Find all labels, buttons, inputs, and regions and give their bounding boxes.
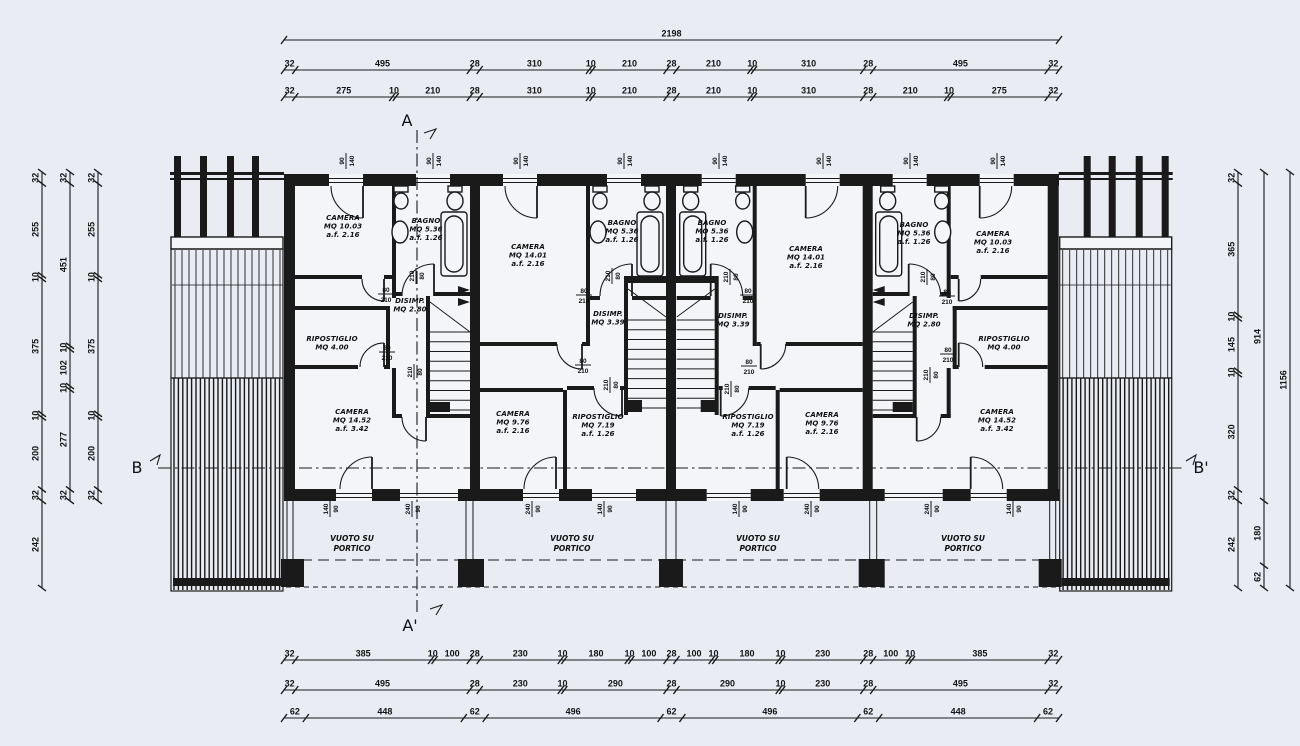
porch-label: VUOTO SU bbox=[330, 534, 374, 543]
porch-door-opening bbox=[523, 489, 559, 501]
porch-label: PORTICO bbox=[739, 544, 777, 553]
room-label: CAMERA bbox=[511, 243, 545, 251]
porch-label: PORTICO bbox=[944, 544, 982, 553]
dim-label: 28 bbox=[470, 679, 480, 689]
dim-label: 310 bbox=[801, 59, 816, 69]
size-label-num: 210 bbox=[409, 270, 416, 281]
deck-boards bbox=[172, 250, 283, 590]
size-label-den: 80 bbox=[930, 273, 937, 281]
room-label: MQ 14.52 bbox=[333, 417, 371, 425]
room-label: MQ 14.52 bbox=[978, 417, 1016, 425]
dim-label: 28 bbox=[666, 649, 676, 659]
dim-label: 180 bbox=[589, 649, 604, 659]
size-label-den: 90 bbox=[415, 505, 422, 513]
size-label-num: 210 bbox=[724, 383, 731, 394]
dim-label: 230 bbox=[513, 679, 528, 689]
room-label: a.f. 2.16 bbox=[805, 428, 838, 436]
toilet-icon bbox=[448, 186, 462, 192]
partition bbox=[392, 368, 396, 417]
size-label-den: 210 bbox=[744, 369, 755, 376]
dim-label: 210 bbox=[425, 86, 440, 96]
room-label: MQ 3.39 bbox=[716, 321, 749, 329]
dim-label: 365 bbox=[1227, 242, 1237, 257]
partition bbox=[480, 342, 557, 346]
size-label-num: 140 bbox=[732, 503, 739, 514]
size-label: 14090 bbox=[732, 501, 749, 517]
porch-pier-lines bbox=[666, 501, 676, 559]
dim-label: 32 bbox=[285, 679, 295, 689]
dim-label: 277 bbox=[59, 432, 69, 447]
dim-label: 2198 bbox=[661, 29, 681, 39]
partition bbox=[295, 306, 390, 310]
partition bbox=[567, 386, 594, 390]
room-label: a.f. 1.26 bbox=[731, 430, 764, 438]
room-label: MQ 4.00 bbox=[987, 344, 1020, 352]
dim-label: 62 bbox=[290, 707, 300, 717]
size-label-num: 80 bbox=[745, 359, 753, 366]
dim-label: 275 bbox=[992, 86, 1007, 96]
section-label-a: A bbox=[402, 111, 413, 130]
room-label: a.f. 1.26 bbox=[409, 234, 442, 242]
size-label-den: 140 bbox=[349, 155, 356, 166]
room-label: MQ 7.19 bbox=[731, 422, 764, 430]
size-label-den: 90 bbox=[814, 505, 821, 513]
size-label-den: 80 bbox=[417, 368, 424, 376]
dim-label: 310 bbox=[527, 59, 542, 69]
porch-label: VUOTO SU bbox=[736, 534, 780, 543]
size-label: 90140 bbox=[617, 153, 634, 169]
room-label: CAMERA bbox=[326, 214, 360, 222]
size-label-den: 80 bbox=[615, 272, 622, 280]
pergola-rail bbox=[170, 178, 284, 180]
floorplan-drawing: A A' B B' 219832495283101021028210103102… bbox=[0, 0, 1300, 746]
room-label: CAMERA bbox=[805, 411, 839, 419]
partition bbox=[480, 388, 563, 392]
central-party-wall bbox=[666, 174, 676, 501]
size-label-den: 210 bbox=[578, 368, 589, 375]
size-label-num: 240 bbox=[924, 503, 931, 514]
room-label: RIPOSTIGLIO bbox=[978, 335, 1029, 343]
partition bbox=[392, 414, 402, 418]
dim-label: 210 bbox=[706, 86, 721, 96]
dim-label: 145 bbox=[1227, 337, 1237, 352]
size-label-num: 140 bbox=[1006, 503, 1013, 514]
size-label: 90140 bbox=[990, 153, 1007, 169]
size-label-den: 210 bbox=[381, 297, 392, 304]
size-label: 14090 bbox=[1006, 501, 1023, 517]
room-label: BAGNO bbox=[900, 221, 929, 229]
dim-label: 32 bbox=[285, 649, 295, 659]
room-label: MQ 5.36 bbox=[897, 230, 930, 238]
section-flag bbox=[424, 129, 436, 139]
dim-label: 320 bbox=[1227, 424, 1237, 439]
size-label-den: 90 bbox=[607, 505, 614, 513]
partition bbox=[384, 275, 392, 279]
bidet-icon bbox=[394, 186, 408, 192]
room-label: a.f. 2.16 bbox=[511, 260, 544, 268]
size-label-den: 80 bbox=[419, 272, 426, 280]
porch-label: VUOTO SU bbox=[550, 534, 594, 543]
size-label-num: 90 bbox=[990, 157, 997, 165]
sink-icon bbox=[590, 221, 606, 243]
dim-label: 242 bbox=[1227, 537, 1237, 552]
dim-label: 62 bbox=[666, 707, 676, 717]
section-label-b-prime: B' bbox=[1193, 458, 1208, 477]
size-label-den: 210 bbox=[382, 355, 393, 362]
size-label-den: 210 bbox=[743, 298, 754, 305]
dim-label: 28 bbox=[666, 86, 676, 96]
porch-door-opening bbox=[336, 489, 372, 501]
room-label: CAMERA bbox=[980, 408, 1014, 416]
pergola-beam bbox=[227, 156, 234, 246]
room-label: MQ 14.01 bbox=[787, 254, 825, 262]
dim-label: 200 bbox=[31, 446, 41, 461]
size-label-num: 80 bbox=[382, 287, 390, 294]
dim-label: 310 bbox=[527, 86, 542, 96]
size-label-den: 210 bbox=[579, 298, 590, 305]
porch-window-opening bbox=[400, 489, 458, 501]
dim-label: 62 bbox=[1253, 572, 1263, 582]
dim-label: 28 bbox=[470, 649, 480, 659]
porch-window-opening bbox=[592, 489, 636, 501]
size-label: 24090 bbox=[525, 501, 542, 517]
size-label-den: 210 bbox=[942, 299, 953, 306]
size-label-num: 140 bbox=[323, 503, 330, 514]
room-label: MQ 4.00 bbox=[315, 344, 348, 352]
dim-label: 210 bbox=[622, 86, 637, 96]
section-flag bbox=[150, 455, 160, 465]
dim-label: 28 bbox=[863, 679, 873, 689]
bathtub-icon bbox=[445, 216, 463, 272]
size-label-num: 210 bbox=[605, 270, 612, 281]
dim-label: 255 bbox=[87, 222, 97, 237]
dim-label: 290 bbox=[608, 679, 623, 689]
size-label-num: 80 bbox=[943, 289, 951, 296]
dim-label: 451 bbox=[59, 257, 69, 272]
bidet-icon bbox=[593, 186, 607, 192]
size-label-num: 90 bbox=[339, 157, 346, 165]
porch-pillar bbox=[281, 559, 304, 587]
dim-label: 210 bbox=[622, 59, 637, 69]
dim-label: 32 bbox=[285, 59, 295, 69]
room-label: a.f. 3.42 bbox=[335, 425, 368, 433]
room-label: BAGNO bbox=[698, 219, 727, 227]
room-label: MQ 10.03 bbox=[324, 223, 362, 231]
partition bbox=[295, 275, 362, 279]
dim-label: 230 bbox=[815, 649, 830, 659]
dim-label: 275 bbox=[336, 86, 351, 96]
room-label: a.f. 1.26 bbox=[695, 236, 728, 244]
dim-label: 180 bbox=[739, 649, 754, 659]
partition bbox=[434, 292, 470, 296]
toilet-icon bbox=[644, 192, 660, 210]
dim-label: 180 bbox=[1253, 526, 1263, 541]
dim-label: 290 bbox=[720, 679, 735, 689]
size-label-num: 90 bbox=[903, 157, 910, 165]
room-label: MQ 5.36 bbox=[409, 226, 442, 234]
dim-label: 32 bbox=[1048, 649, 1058, 659]
dim-label: 495 bbox=[375, 59, 390, 69]
room-label: MQ 5.36 bbox=[605, 228, 638, 236]
room-label: CAMERA bbox=[335, 408, 369, 416]
porch-label: PORTICO bbox=[553, 544, 591, 553]
room-label: MQ 7.19 bbox=[581, 422, 614, 430]
pergola-beam bbox=[174, 156, 181, 246]
size-label-num: 80 bbox=[383, 345, 391, 352]
window-opening bbox=[329, 174, 363, 186]
size-label: 90140 bbox=[816, 153, 833, 169]
dim-label: 62 bbox=[863, 707, 873, 717]
size-label-den: 80 bbox=[613, 381, 620, 389]
dim-label: 100 bbox=[445, 649, 460, 659]
room-label: MQ 2.80 bbox=[907, 321, 940, 329]
room-label: a.f. 2.16 bbox=[789, 262, 822, 270]
partition bbox=[632, 296, 666, 300]
dim-label: 28 bbox=[863, 59, 873, 69]
room-label: a.f. 3.42 bbox=[980, 425, 1013, 433]
room-label: a.f. 1.26 bbox=[581, 430, 614, 438]
dim-label: 100 bbox=[883, 649, 898, 659]
pergola-beam bbox=[252, 156, 259, 246]
room-label: RIPOSTIGLIO bbox=[572, 413, 623, 421]
size-label-num: 210 bbox=[603, 379, 610, 390]
dim-label: 496 bbox=[762, 707, 777, 717]
size-label: 90140 bbox=[903, 153, 920, 169]
size-label-num: 210 bbox=[407, 366, 414, 377]
size-label-den: 80 bbox=[933, 371, 940, 379]
dim-label: 28 bbox=[863, 649, 873, 659]
size-label-num: 140 bbox=[597, 503, 604, 514]
partition bbox=[624, 276, 668, 283]
size-label-num: 90 bbox=[712, 157, 719, 165]
room-label: DISIMP. bbox=[718, 312, 748, 320]
partition bbox=[295, 365, 358, 369]
dim-label: 255 bbox=[31, 222, 41, 237]
section-label-a-prime: A' bbox=[402, 616, 417, 635]
room-label: DISIMP. bbox=[909, 312, 939, 320]
size-label: 14090 bbox=[597, 501, 614, 517]
room-label: MQ 9.76 bbox=[805, 420, 838, 428]
toilet-icon bbox=[645, 186, 659, 192]
porch-pillar bbox=[458, 559, 484, 587]
room-label: a.f. 2.16 bbox=[976, 247, 1009, 255]
dim-label: 32 bbox=[1048, 59, 1058, 69]
porch-label: PORTICO bbox=[333, 544, 371, 553]
size-label: 90140 bbox=[426, 153, 443, 169]
size-label: 24090 bbox=[804, 501, 821, 517]
size-label-num: 210 bbox=[923, 369, 930, 380]
partition bbox=[590, 296, 600, 300]
room-label: CAMERA bbox=[976, 230, 1010, 238]
dim-label: 495 bbox=[953, 59, 968, 69]
room-label: a.f. 1.26 bbox=[897, 238, 930, 246]
room-label: DISIMP. bbox=[395, 297, 425, 305]
dim-label: 242 bbox=[31, 537, 41, 552]
room-label: a.f. 2.16 bbox=[496, 427, 529, 435]
room-label: MQ 3.39 bbox=[591, 319, 624, 327]
dim-label: 210 bbox=[706, 59, 721, 69]
room-label: CAMERA bbox=[789, 245, 823, 253]
sink-icon bbox=[392, 221, 408, 243]
room-label: a.f. 1.26 bbox=[605, 236, 638, 244]
size-label-den: 140 bbox=[826, 155, 833, 166]
room-label: MQ 2.80 bbox=[393, 306, 426, 314]
dim-label: 230 bbox=[815, 679, 830, 689]
room-label: MQ 14.01 bbox=[509, 252, 547, 260]
stair-landing-block bbox=[626, 400, 642, 412]
room-label: MQ 5.36 bbox=[695, 228, 728, 236]
size-label-num: 90 bbox=[617, 157, 624, 165]
pergola-cr ossbeam bbox=[171, 237, 283, 249]
size-label-num: 90 bbox=[513, 157, 520, 165]
dim-label: 32 bbox=[1048, 679, 1058, 689]
room-label: RIPOSTIGLIO bbox=[722, 413, 773, 421]
size-label-den: 140 bbox=[722, 155, 729, 166]
party-wall bbox=[470, 174, 480, 501]
size-label-num: 90 bbox=[426, 157, 433, 165]
dim-label: 28 bbox=[863, 86, 873, 96]
pergola-structure bbox=[170, 156, 284, 591]
dim-label: 448 bbox=[951, 707, 966, 717]
window-opening bbox=[607, 174, 641, 186]
dim-label: 100 bbox=[641, 649, 656, 659]
dim-label: 448 bbox=[377, 707, 392, 717]
bidet-icon bbox=[394, 193, 408, 209]
dim-label: 495 bbox=[375, 679, 390, 689]
dim-label: 62 bbox=[470, 707, 480, 717]
size-label-den: 140 bbox=[436, 155, 443, 166]
bidet-icon bbox=[593, 193, 607, 209]
dim-label: 495 bbox=[953, 679, 968, 689]
room-label: a.f. 2.16 bbox=[326, 231, 359, 239]
size-label-den: 140 bbox=[913, 155, 920, 166]
dim-label: 375 bbox=[31, 339, 41, 354]
window-opening bbox=[503, 174, 537, 186]
size-label-den: 140 bbox=[523, 155, 530, 166]
dim-label: 28 bbox=[470, 86, 480, 96]
size-label: 24090 bbox=[405, 501, 422, 517]
size-label-num: 80 bbox=[580, 288, 588, 295]
bathtub-icon bbox=[641, 216, 659, 272]
dim-label: 100 bbox=[687, 649, 702, 659]
size-label-num: 240 bbox=[525, 503, 532, 514]
size-label-num: 240 bbox=[405, 503, 412, 514]
size-label: 90140 bbox=[339, 153, 356, 169]
stair-shaft-wall bbox=[426, 296, 430, 414]
dim-label: 230 bbox=[513, 649, 528, 659]
dim-label: 28 bbox=[666, 679, 676, 689]
toilet-icon bbox=[447, 192, 463, 210]
dim-label: 385 bbox=[356, 649, 371, 659]
size-label: 90140 bbox=[513, 153, 530, 169]
size-label: 14090 bbox=[323, 501, 340, 517]
dim-label: 28 bbox=[666, 59, 676, 69]
porch-layer bbox=[284, 501, 1058, 587]
dim-label: 210 bbox=[903, 86, 918, 96]
size-label: 90140 bbox=[712, 153, 729, 169]
room-label: BAGNO bbox=[608, 219, 637, 227]
size-label-den: 90 bbox=[535, 505, 542, 513]
room-label: CAMERA bbox=[496, 410, 530, 418]
dim-label: 385 bbox=[972, 649, 987, 659]
dim-label: 310 bbox=[801, 86, 816, 96]
dim-label: 32 bbox=[1048, 86, 1058, 96]
size-label-den: 80 bbox=[733, 273, 740, 281]
size-label-num: 210 bbox=[723, 271, 730, 282]
dim-label: 28 bbox=[470, 59, 480, 69]
partition bbox=[586, 186, 590, 346]
porch-pillar bbox=[659, 559, 683, 587]
size-label-num: 210 bbox=[920, 271, 927, 282]
dim-label: 102 bbox=[59, 360, 69, 375]
size-label-den: 90 bbox=[742, 505, 749, 513]
size-label-den: 90 bbox=[934, 505, 941, 513]
size-label-den: 90 bbox=[333, 505, 340, 513]
dim-label: 32 bbox=[285, 86, 295, 96]
size-label-den: 140 bbox=[627, 155, 634, 166]
size-label-num: 240 bbox=[804, 503, 811, 514]
size-label-num: 80 bbox=[944, 347, 952, 354]
room-label: RIPOSTIGLIO bbox=[306, 335, 357, 343]
dim-label: 496 bbox=[566, 707, 581, 717]
porch-pier-lines bbox=[287, 501, 473, 559]
dim-label: 1156 bbox=[1279, 370, 1289, 390]
size-label-num: 80 bbox=[744, 288, 752, 295]
dim-label: 914 bbox=[1253, 329, 1263, 344]
pergola-rail bbox=[170, 172, 284, 175]
stair-shaft-wall bbox=[624, 283, 628, 415]
porch-label: VUOTO SU bbox=[941, 534, 985, 543]
pergola-beam bbox=[200, 156, 207, 246]
size-label-num: 90 bbox=[816, 157, 823, 165]
partition bbox=[426, 414, 470, 418]
size-label-den: 90 bbox=[1016, 505, 1023, 513]
size-label-den: 210 bbox=[943, 357, 954, 364]
size-label-num: 80 bbox=[579, 358, 587, 365]
room-label: MQ 10.03 bbox=[974, 239, 1012, 247]
size-label: 24090 bbox=[924, 501, 941, 517]
size-label-den: 80 bbox=[734, 385, 741, 393]
room-label: DISIMP. bbox=[593, 310, 623, 318]
size-label-den: 140 bbox=[1000, 155, 1007, 166]
left-exterior-wall bbox=[284, 174, 295, 501]
dim-label: 200 bbox=[87, 446, 97, 461]
section-label-b: B bbox=[132, 458, 143, 477]
section-flag bbox=[430, 605, 442, 615]
dim-label: 375 bbox=[87, 339, 97, 354]
window-opening bbox=[416, 174, 450, 186]
room-label: BAGNO bbox=[412, 217, 441, 225]
partition bbox=[563, 390, 567, 489]
room-label: MQ 9.76 bbox=[496, 419, 529, 427]
dim-label: 62 bbox=[1043, 707, 1053, 717]
scanned-floor-plan-page: A A' B B' 219832495283101021028210103102… bbox=[0, 0, 1300, 746]
